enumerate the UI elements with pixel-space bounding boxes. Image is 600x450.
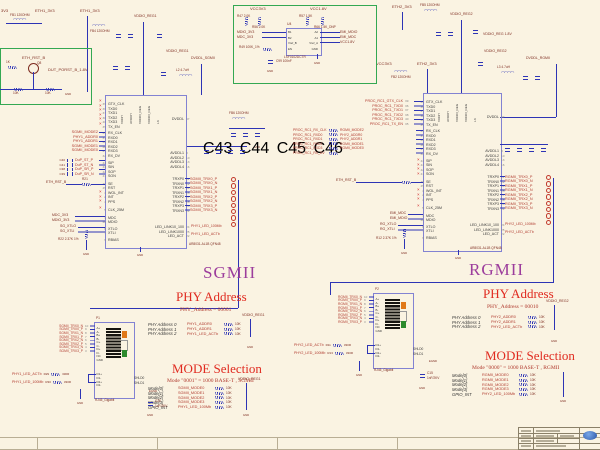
capacitor	[243, 133, 248, 137]
no-connect-marks	[99, 99, 104, 126]
gnd-symbol: GND	[454, 255, 462, 260]
capacitor	[473, 30, 478, 34]
ic-pin: 35TX_EN	[426, 123, 442, 128]
gnd-symbol: GND	[266, 68, 274, 73]
capacitor	[523, 76, 528, 80]
strap-row: GPIO_INTPHY2_LED_100Mb10K	[452, 392, 536, 397]
ic-right-trx: TRXP011TRXN012TRXP114TRXN115TRXP217TRXN2…	[469, 175, 499, 211]
ferrite-fb2-label: FB2 120OHM	[391, 76, 411, 79]
earth-gnd-symbol: EGND	[429, 358, 437, 363]
connector-pin-shld0: SHLD0	[134, 377, 144, 380]
ic-part-label: AR8031-AL1B QFN48	[470, 247, 502, 250]
ic-right-pwr: DVDDL47	[469, 115, 499, 120]
net-row: RGMII_TRX3_P3	[327, 320, 369, 324]
inductor-l2-icon	[179, 74, 192, 79]
resistor-value: 1K	[6, 61, 10, 64]
wire	[458, 250, 459, 255]
connector-part-label: RJ45_Gigabit	[374, 369, 393, 372]
ic-pin: TRXN321	[469, 207, 499, 212]
ic-pin: AVDDL416	[469, 163, 499, 168]
inductor-l2-label: L2 4.7uH	[176, 69, 189, 72]
phy-ic-rgmii: VDDHAVDDHVDDIO_REGVDDIO_REGLX 39GTX_CLK3…	[423, 93, 502, 252]
net-label-emi-mdio: EMI_MDIO	[390, 217, 407, 221]
capacitor	[113, 66, 118, 70]
ic-pin-top: VDDIO_REG	[464, 96, 468, 122]
company-logo	[583, 431, 597, 440]
wire-bundle	[369, 295, 374, 324]
capacitor-value: 1nF/2KV	[427, 377, 439, 380]
capacitor	[204, 150, 209, 154]
ic-pin: 5CLK_25M	[108, 208, 124, 213]
rj45-left-input-nets: SGMII_TRX0_N10SGMII_TRX0_P9SGMII_TRX1_N8…	[48, 324, 90, 353]
capacitor	[420, 374, 425, 378]
wire	[88, 374, 89, 382]
resistor-icon	[85, 230, 88, 239]
capacitor	[228, 150, 233, 154]
phy-address-title-left: PHY Address	[176, 290, 247, 303]
wire-bundle	[75, 214, 105, 223]
capacitor	[128, 34, 133, 38]
led-net-row: PHY2_LED_100MbR13330R	[294, 349, 353, 357]
rj45-right-led-pins: D1+D1-D2+D2-	[376, 343, 381, 358]
ic-pin: 48MDIO	[108, 220, 124, 225]
resistor-icon	[8, 66, 17, 69]
wire	[359, 361, 360, 371]
power-flag: VDDIO_REG2	[546, 299, 569, 303]
phy-ic-sgmii: VDDHAVDDHVDDIO_REGVDDIO_REGLX 39GTX_CLK3…	[105, 95, 187, 249]
ic-pin: DVDDL47	[154, 117, 184, 122]
note-vddio-reg-1v8: VDDIO_REG 1.8V	[483, 33, 512, 37]
net-label: MDC_3V3	[237, 35, 261, 40]
resistor-icon	[263, 48, 272, 51]
gnd-symbol: GND	[400, 250, 408, 255]
ic-pin: 5CLK_25M	[426, 206, 442, 211]
resistor-icon	[403, 229, 406, 238]
wire	[33, 72, 34, 89]
wire	[91, 184, 105, 185]
net-label-vcc3v3: VCC3V3	[250, 7, 266, 11]
no-connect-marks	[99, 190, 104, 204]
gnd-symbol: GND	[64, 91, 72, 96]
gnd-symbol: GND	[246, 344, 254, 349]
connector-ref: P2	[375, 288, 379, 291]
ic-pin: 4PPS	[426, 198, 442, 203]
frame-tick	[397, 437, 398, 449]
ic-pin: TRXN321	[154, 209, 184, 214]
net-label-led100: PHY2_LED_100Mb	[505, 223, 536, 227]
connector-ref: P1	[96, 317, 100, 320]
capacitor-ref: C30	[155, 400, 161, 403]
resistor-label: R22 2.37K 1%	[58, 238, 79, 241]
net-row: PROC_RC1_TX_EN35	[340, 122, 412, 127]
net-row: SGMII_TRX3_P3	[48, 349, 90, 353]
wire	[143, 22, 144, 95]
wire	[66, 184, 82, 185]
net-label: VCC1.8V	[340, 40, 366, 45]
gnd-symbol: GND	[418, 385, 426, 390]
ic-pin: 4PPS	[108, 200, 124, 205]
net-label-vddio-reg2: VDDIO_REG2	[450, 13, 473, 17]
resistor-icon	[306, 17, 309, 26]
shifter-pins-right: A2A1Vref_AGND	[300, 30, 318, 52]
rj45-contacts-icon	[106, 328, 121, 359]
gnd-symbol: GND	[82, 251, 90, 256]
ic-ref: U4	[287, 23, 291, 27]
shifter-nets-left: MDIO_3V3MDC_3V3	[237, 30, 261, 40]
ic-pin: 9RBIAS	[108, 238, 124, 243]
ic-right-avdd: AVDDL18AVDDL210AVDDL313AVDDL416	[154, 151, 184, 169]
ic-pin: 32RX_DV	[426, 152, 442, 157]
connector-pin-shld1: SHLD1	[413, 353, 423, 356]
mode-selection-value-right: Mode "0000" = 1000 BASE-T , RGMII	[472, 366, 559, 372]
net-row: PROC_RC1_RX_DV	[293, 151, 364, 156]
rgmii-tx-nets: PROC_RC1_GTX_CLK39PROC_RC1_TXD036PROC_RC…	[340, 99, 412, 126]
net-label-eth-rst-b: ETH_RST_B	[46, 181, 66, 185]
inductor-l3-icon	[501, 71, 514, 76]
mode-selection-title-right: MODE Selection	[485, 349, 575, 362]
wire	[402, 12, 403, 30]
wire	[262, 37, 286, 38]
capacitor	[157, 34, 162, 38]
resistor-label: R49 100K_1%	[239, 46, 260, 49]
sgmii-serdes-caps: C40DuP_ST_PC41DuP_ST_NC38DuP_SR_PC39DuP_…	[56, 158, 94, 176]
no-connect-marks	[99, 206, 104, 211]
gnd-symbol: GND	[313, 60, 321, 65]
ferrite-fb5-label: FB5 120OHM	[420, 4, 440, 7]
ic-pin: 48MDIO	[426, 218, 442, 223]
led-net-row: PHY1_LED_100MbR30330R	[12, 378, 71, 386]
sgmii-strap-nets: SGMII_MODE2PHY1_ADDR0PHY1_ADDR1SGMII_MOD…	[52, 130, 98, 153]
led-net-row: PHY1_LED_ACTbR29330R	[12, 370, 71, 378]
no-connect-marks	[417, 158, 422, 176]
ic-pin: 35TX_EN	[108, 125, 124, 130]
ic-pin: AVDDL416	[154, 165, 184, 170]
shifter-nets-right: EMI_MDIOEMI_MDCVCC1.8V	[340, 30, 366, 45]
wire	[404, 239, 405, 249]
connector-pin: GND	[376, 329, 382, 333]
wire	[427, 69, 428, 93]
wire	[461, 20, 462, 93]
strap-row: PHY Address 2PHY2_LED_ACTb10K	[452, 324, 545, 329]
capacitor	[436, 32, 441, 36]
resistor-value: 10K	[45, 92, 51, 95]
frame-tick	[37, 437, 38, 449]
connector-pin-shld1: SHLD1	[134, 382, 144, 385]
power-flag: VDDIO_REG1	[238, 377, 261, 381]
net-label-vcc1v8: VCC1.8V	[310, 7, 327, 11]
connector-pin: D2-	[97, 383, 102, 387]
resistor-icon	[82, 183, 91, 186]
wire-bundle	[90, 324, 95, 353]
wire-bundle	[414, 99, 423, 126]
capacitor-label: C99 100nF	[276, 60, 292, 63]
net-label-eth-rst-b: ETH_RST_B	[22, 56, 45, 60]
capacitor	[541, 148, 546, 152]
wire	[320, 32, 340, 33]
rgmii-trx-nets: RGMII_TRX0_PRGMII_TRX0_NRGMII_TRX1_PRGMI…	[505, 175, 543, 211]
net-label-dvddl-sgmii: DVDDL_SGMII	[191, 57, 215, 61]
shifter-pin: GND	[300, 47, 318, 53]
net-label-emi-mdc: EMI_MDC	[390, 212, 406, 216]
rj45-left-led-nets: PHY1_LED_ACTbR29330RPHY1_LED_100MbR30330…	[12, 370, 71, 386]
wire	[367, 345, 375, 346]
sgmii-trx-protection	[231, 177, 236, 227]
gnd-symbol: GND	[550, 338, 558, 343]
earth-gnd-symbol: EGND	[149, 388, 157, 393]
wire-bundle	[99, 130, 105, 153]
resistor-ref: R21	[82, 178, 88, 181]
capacitor-ref: C15	[427, 372, 433, 375]
ic-pin: DVDDL47	[469, 115, 499, 120]
wire	[250, 319, 251, 337]
capacitor-ref: C44	[240, 140, 269, 158]
wire	[563, 372, 564, 397]
net-label-xtlo: SG_XTLO	[60, 225, 76, 229]
resistor-icon	[245, 17, 248, 26]
phy-address-value-left: PHY_Address = 00001	[180, 308, 231, 314]
net-label-dut-porst: DUT_PORST_B_1.8V	[48, 68, 88, 72]
rj45-left-pins: A+A-B+B-C+C-D+D-NCGND	[97, 326, 103, 361]
capacitor	[116, 34, 121, 38]
net-label-vddio-reg2: VDDIO_REG2	[484, 50, 507, 54]
gnd-symbol: GND	[355, 372, 363, 377]
rj45-left-led-pins: D1+D1-D2+D2-	[97, 372, 102, 387]
wire	[262, 32, 286, 33]
ic-right-pwr: DVDDL47	[154, 117, 184, 122]
net-label-eth-rst-b: ETH_RST_B	[336, 179, 356, 183]
ic-pin-top: VDDIO_REG	[147, 98, 151, 124]
wire-bundle	[99, 158, 105, 176]
net-label: RGMII_TRX3_N	[505, 206, 543, 211]
capacitor	[478, 62, 483, 66]
wire-bundle	[408, 212, 423, 221]
ic-pin: 9RBIAS	[426, 236, 442, 241]
power-flag: VDDIO_REG1	[242, 313, 265, 317]
wire	[246, 383, 247, 410]
wire	[88, 374, 96, 375]
ic-right-avdd: AVDDL18AVDDL210AVDDL313AVDDL416	[469, 149, 499, 167]
no-connect-marks	[417, 188, 422, 202]
ferrite-fb1-label: FB1 120OHM	[10, 14, 30, 17]
net-label: SGMII_MODE0	[52, 148, 98, 153]
wire-bundle	[78, 225, 105, 234]
ic-pin: LED_ACT22	[465, 232, 499, 237]
capacitor	[161, 72, 166, 76]
connector-part-label: RJ45_Gigabit	[95, 399, 114, 402]
resistor-label: R57 1.5K	[299, 15, 312, 18]
phy-address-rows-left: PHY Address 0PHY1_ADDR010KPHY Address 1P…	[148, 322, 241, 336]
ferrite-fb4-label: FB4 120OHM	[90, 30, 110, 33]
wire-bundle	[398, 223, 423, 232]
resistor-value: 10K	[13, 92, 19, 95]
rj45-led-orange	[401, 302, 406, 309]
wire	[6, 23, 42, 24]
wire	[320, 42, 340, 43]
wire	[553, 178, 554, 282]
wire	[229, 128, 265, 129]
resistor-label: R56 2.0K	[252, 26, 265, 29]
net-label-xtlo: RG_XTLO	[380, 223, 396, 227]
capacitor	[125, 66, 130, 70]
mode-rows-right: Mode[0]RGMII_MODE010KMode[1]RGMII_MODE11…	[452, 373, 536, 396]
rgmii-rx-strap-nets: PROC_RC1_RX_CLKRGMII_MODE2PROC_RC1_RXD0P…	[293, 128, 364, 155]
net-label-3v3: 3V3	[1, 9, 8, 13]
ic-pin-top: AVDDH	[129, 98, 133, 124]
title-block	[518, 427, 600, 450]
net-label-eth1-3v3: ETH1_3V3	[35, 9, 55, 13]
ic-part-label: AR8031-AL1B QFN48	[189, 243, 221, 246]
led-net-row: PHY2_LED_ACTbR11330R	[294, 341, 353, 349]
resistor-label: R12 2.37K 1%	[376, 237, 397, 240]
shifter-pin: EN	[288, 47, 297, 53]
resistor-icon	[402, 181, 411, 184]
capacitor-ref: C43	[203, 140, 232, 158]
ic-left-pins: 39GTX_CLK36TXD037TXD138TXD240TXD335TX_EN…	[108, 102, 124, 242]
sgmii-trx-nets: SGMII_TRX0_PSGMII_TRX0_NSGMII_TRX1_PSGMI…	[190, 177, 228, 213]
ic-pin: 7XTLI	[426, 229, 442, 234]
strap-row: PHY Address 2PHY1_LED_ACTb10K	[148, 331, 241, 336]
rj45-contacts-icon	[385, 299, 400, 330]
capacitor	[529, 148, 534, 152]
rj45-right-pins: A+A-B+B-C+C-D+D-NCGND	[376, 297, 382, 332]
mode-selection-title-left: MODE Selection	[172, 362, 262, 375]
net-label-xtli: RG_XTLI	[380, 228, 395, 232]
connector-pin-shld0: SHLD0	[413, 348, 423, 351]
ic-pin: 32RX_DV	[108, 154, 124, 159]
capacitor	[535, 76, 540, 80]
gnd-symbol: GND	[76, 400, 84, 405]
wire	[320, 37, 340, 38]
no-connect-marks	[417, 204, 422, 209]
wire	[367, 345, 368, 353]
section-label-rgmii: RGMII	[469, 261, 524, 278]
ic-pin-top: AVDDH	[446, 96, 450, 122]
rj45-right-led-nets: PHY2_LED_ACTbR11330RPHY2_LED_100MbR13330…	[294, 341, 353, 357]
net-label: SGMII_TRX3_N	[190, 208, 228, 213]
capacitor	[268, 60, 273, 64]
net-label-led100: PHY1_LED_100Mb	[191, 225, 222, 229]
capacitor	[216, 150, 221, 154]
wire	[317, 54, 318, 59]
wire	[201, 64, 202, 95]
wire	[80, 389, 81, 399]
reset-circuit-box	[0, 48, 92, 105]
capacitor-value: 1nF/2KV	[155, 405, 167, 408]
ic-pin-top: VDDIO_REG	[455, 96, 459, 122]
wire	[367, 353, 375, 354]
connector-pin: GND	[97, 358, 103, 362]
gnd-symbol: GND	[146, 412, 154, 417]
section-label-sgmii: SGMII	[203, 264, 256, 281]
net-label-xtli: SG_XTLI	[60, 230, 74, 234]
phy-address-value-right: PHY_Address = 00010	[487, 305, 538, 311]
phy-address-rows-right: PHY Address 0PHY2_ADDR010KPHY Address 1P…	[452, 315, 545, 329]
net-label-vddio-reg1: VDDIO_REG1	[166, 50, 189, 54]
net-label-eth1-3v3: ETH1_3V3	[80, 9, 100, 13]
net-label-eth2-3v3: ETH2_3V3	[392, 5, 412, 9]
capacitor	[148, 402, 153, 406]
rj45-right-input-nets: RGMII_TRX0_N10RGMII_TRX0_P9RGMII_TRX1_N8…	[327, 295, 369, 324]
net-label-mdc: MDC_3V3	[52, 214, 68, 218]
ic-right-led: LED_LINK10_10024LED_LINK100025LED_ACT22	[150, 225, 184, 239]
phy-address-title-right: PHY Address	[483, 287, 554, 300]
wire-bundle	[416, 128, 423, 155]
rj45-led-orange	[122, 331, 127, 338]
sheet-frame-line	[0, 437, 600, 438]
wire	[88, 382, 96, 383]
ic-pin: 7XTLI	[108, 231, 124, 236]
wire	[556, 64, 557, 117]
net-label-ledact: PHY1_LED_ACTb	[191, 233, 220, 237]
ic-right-trx: TRXP011TRXN012TRXP114TRXN115TRXP217TRXN2…	[154, 177, 184, 213]
net-label-eth2-3v3: ETH2_3V3	[417, 62, 437, 66]
rj45-led-green	[401, 321, 406, 328]
ic-pin: LED_ACT22	[150, 234, 184, 239]
gnd-symbol: GND	[559, 398, 567, 403]
wire	[554, 305, 555, 330]
capacitor	[231, 133, 236, 137]
inductor-l3-label: L3 4.7uH	[497, 66, 510, 69]
ic-pin: 41SON	[426, 172, 442, 177]
ferrite-fb6-label: FB6 120OHM	[229, 112, 249, 115]
ferrite-fb5-icon	[424, 9, 437, 14]
rgmii-trx-protection	[546, 175, 551, 225]
wire	[86, 240, 87, 250]
ferrite-fb6-icon	[232, 117, 245, 122]
resistor-label: R47 2.0K	[237, 15, 250, 18]
ic-pin-top: VDDIO_REG	[138, 98, 142, 124]
wire	[330, 282, 554, 283]
cap-net-row: C39DuP_SR_N	[56, 172, 94, 177]
gnd-symbol: GND	[242, 412, 250, 417]
net-label-ledact: PHY2_LED_ACTb	[505, 231, 534, 235]
shifter-pins-left: B1B2Vref_BEN	[288, 30, 297, 52]
ic-right-led: LED_LINK10_10024LED_LINK100025LED_ACT22	[465, 223, 499, 237]
net-label-mdio: MDIO_3V3	[52, 219, 69, 223]
capacitor	[240, 150, 245, 154]
capacitor	[448, 32, 453, 36]
capacitor	[505, 148, 510, 152]
schematic-sheet: 3V3 FB1 120OHM ETH1_3V3 ETH1_3V3 FB4 120…	[0, 0, 600, 450]
wire	[140, 247, 141, 252]
frame-tick	[277, 437, 278, 449]
frame-tick	[157, 437, 158, 449]
net-label-dvddl-rgmii: DVDDL_RGMII	[526, 57, 550, 61]
wire	[500, 144, 548, 145]
capacitor	[255, 133, 260, 137]
rj45-led-green	[122, 350, 127, 357]
ic-left-pins: 39GTX_CLK36TXD037TXD138TXD240TXD335TX_EN…	[426, 100, 442, 240]
ic-pin: 41SON	[108, 174, 124, 179]
gnd-symbol: GND	[136, 252, 144, 257]
wire	[330, 282, 331, 295]
connector-pin: D2-	[376, 354, 381, 358]
capacitor	[517, 148, 522, 152]
net-label-vddio-reg1: VDDIO_REG1	[134, 15, 157, 19]
wire	[411, 182, 423, 183]
net-label-vcc3v3: VCC3V3	[376, 62, 392, 66]
wire	[356, 182, 402, 183]
